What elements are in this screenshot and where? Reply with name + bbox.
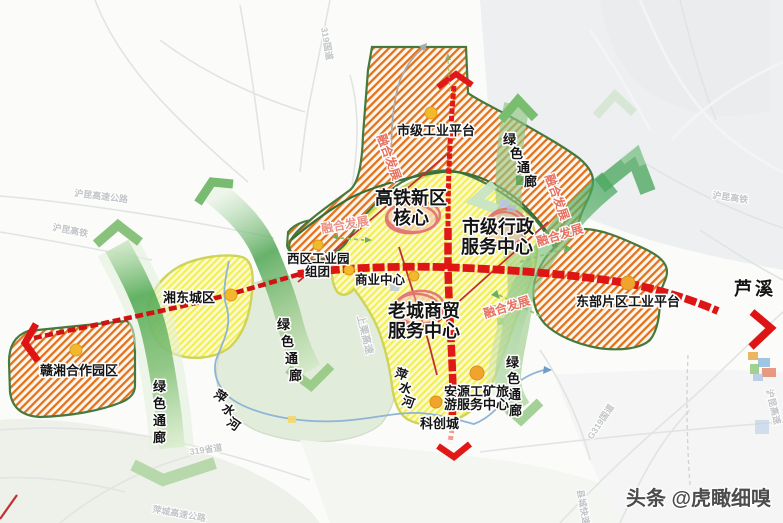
svg-text:廊: 廊 xyxy=(153,430,166,445)
svg-text:市级行政: 市级行政 xyxy=(462,216,535,237)
svg-text:通: 通 xyxy=(285,351,298,366)
svg-text:色: 色 xyxy=(153,396,166,411)
svg-text:服务中心: 服务中心 xyxy=(461,236,533,257)
svg-text:芦溪: 芦溪 xyxy=(734,278,776,299)
svg-text:核心: 核心 xyxy=(393,207,429,228)
svg-text:湘东城区: 湘东城区 xyxy=(163,290,215,305)
svg-text:高铁新区: 高铁新区 xyxy=(375,187,447,208)
svg-text:组团: 组团 xyxy=(305,264,330,279)
svg-text:通: 通 xyxy=(508,387,521,402)
svg-text:廊: 廊 xyxy=(524,174,537,189)
svg-text:东部片区工业平台: 东部片区工业平台 xyxy=(576,294,680,309)
svg-text:服务中心: 服务中心 xyxy=(388,320,460,341)
svg-text:赣湘合作园区: 赣湘合作园区 xyxy=(40,363,118,378)
svg-text:绿: 绿 xyxy=(277,317,291,332)
svg-text:头条 @虎瞰细嗅: 头条 @虎瞰细嗅 xyxy=(626,486,772,510)
svg-text:科创城: 科创城 xyxy=(420,416,459,431)
svg-text:色: 色 xyxy=(510,146,523,161)
svg-text:廊: 廊 xyxy=(289,368,302,383)
svg-text:游服务中心: 游服务中心 xyxy=(444,397,509,412)
svg-text:色: 色 xyxy=(281,334,294,349)
svg-text:市级工业平台: 市级工业平台 xyxy=(397,123,475,138)
svg-text:绿: 绿 xyxy=(503,132,517,147)
svg-text:廊: 廊 xyxy=(509,403,522,418)
svg-text:绿: 绿 xyxy=(506,355,520,370)
svg-text:通: 通 xyxy=(517,160,530,175)
svg-text:西区工业园: 西区工业园 xyxy=(287,251,350,266)
svg-text:商业中心: 商业中心 xyxy=(355,272,406,287)
svg-text:老城商贸: 老城商贸 xyxy=(388,300,460,321)
svg-text:绿: 绿 xyxy=(153,379,167,394)
svg-text:通: 通 xyxy=(153,413,166,428)
